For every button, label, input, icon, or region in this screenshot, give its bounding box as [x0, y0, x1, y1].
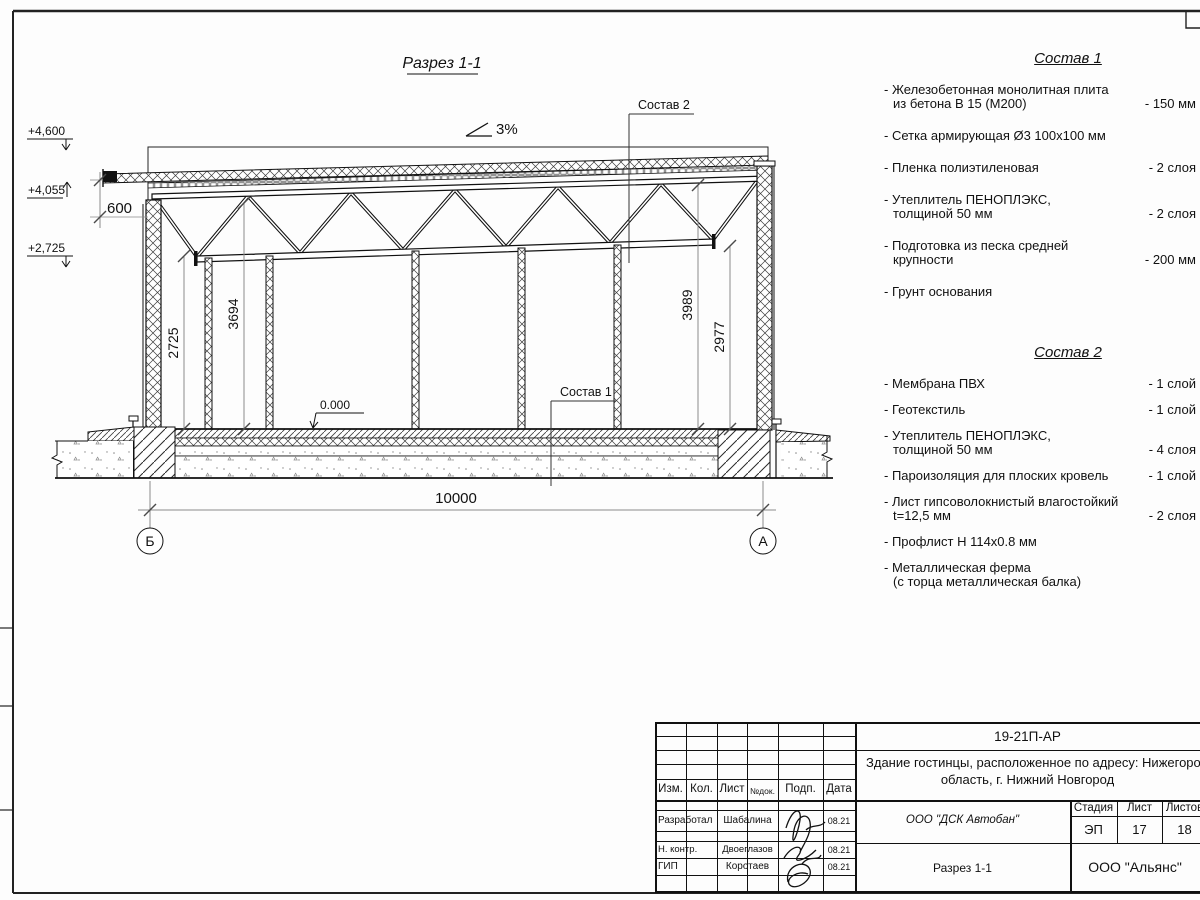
list-item: - Железобетонная монолитная плита из бет…	[884, 83, 1196, 111]
item-line1: - Профлист Н 114х0.8 мм	[884, 535, 1037, 549]
row-role: Разработал	[658, 815, 712, 826]
span-dimension: 10000 Б А	[137, 481, 776, 554]
col-header-kol: Кол.	[686, 783, 717, 795]
ground-left	[57, 441, 133, 478]
item-quantity: - 1 слой	[1142, 377, 1196, 391]
item-quantity: - 200 мм	[1139, 253, 1196, 267]
list-item: - Лист гипсоволокнистый влагостойкий t=1…	[884, 495, 1196, 523]
slope-angle-icon	[466, 123, 492, 136]
zero-level-mark: 0.000	[310, 398, 364, 428]
list-item: - Металлическая ферма (с торца металличе…	[884, 561, 1196, 589]
item-line1: - Утеплитель ПЕНОПЛЭКС,	[884, 429, 1051, 443]
floor-sand-layer	[168, 446, 749, 456]
list-item: - Пароизоляция для плоских кровель - 1 с…	[884, 469, 1196, 483]
level-4055: +4,055	[28, 183, 65, 197]
item-quantity: - 1 слой	[1142, 403, 1196, 417]
sheets-total: 18	[1162, 822, 1200, 837]
right-wall	[757, 166, 772, 430]
column	[518, 248, 525, 429]
item-line2: толщиной 50 мм	[884, 207, 1051, 221]
row-role: Н. контр.	[658, 844, 697, 855]
drawing-name: Разрез 1-1	[855, 861, 1070, 875]
list-item: - Утеплитель ПЕНОПЛЭКС, толщиной 50 мм -…	[884, 193, 1196, 221]
frame-corner-notch	[1186, 12, 1200, 28]
level-4600: +4,600	[28, 124, 65, 138]
item-line2: из бетона В 15 (М200)	[884, 97, 1109, 111]
slope-mark: 3%	[466, 121, 518, 138]
drawing-title: Разрез 1-1	[402, 55, 481, 74]
company-name: ООО "Альянс"	[1070, 859, 1200, 875]
dim-3989: 3989	[679, 289, 695, 320]
drawing-title-text: Разрез 1-1	[402, 55, 481, 72]
sheets-label: Листов	[1162, 802, 1200, 814]
list-item: - Сетка армирующая Ø3 100х100 мм	[884, 129, 1196, 143]
stage-value: ЭП	[1070, 822, 1117, 837]
dim-3694: 3694	[225, 298, 241, 329]
sheet-number: 17	[1117, 822, 1162, 837]
floor-assembly	[161, 429, 757, 478]
elevation-marks: +4,600 +4,055 +2,725	[27, 124, 73, 267]
level-0000: 0.000	[320, 398, 350, 412]
eave-fascia-block	[103, 171, 117, 182]
list-item: - Профлист Н 114х0.8 мм	[884, 535, 1196, 549]
item-line1: - Грунт основания	[884, 285, 992, 299]
row-name: Двоеглазов	[717, 844, 778, 855]
item-line1: - Мембрана ПВХ	[884, 377, 985, 391]
slope-value: 3%	[496, 121, 518, 138]
item-line1: - Геотекстиль	[884, 403, 965, 417]
project-name-line1: Здание гостинцы, расположенное по адресу…	[866, 755, 1200, 770]
item-line1: - Лист гипсоволокнистый влагостойкий	[884, 495, 1118, 509]
dim-600: 600	[107, 200, 132, 217]
floor-screed-layer	[161, 429, 757, 438]
dim-10000: 10000	[435, 490, 477, 507]
item-line2: t=12,5 мм	[884, 509, 1118, 523]
col-header-izm: Изм.	[655, 783, 686, 795]
item-line1: - Металлическая ферма	[884, 561, 1081, 575]
column	[205, 258, 212, 429]
doc-number: 19-21П-АР	[855, 729, 1200, 744]
apron-right	[776, 430, 830, 442]
item-quantity: - 1 слой	[1142, 469, 1196, 483]
title-block: Изм. Кол. Лист №док. Подп. Дата Разработ…	[655, 722, 1200, 893]
item-line2: (с торца металлическая балка)	[884, 575, 1081, 589]
item-quantity: - 2 слоя	[1143, 161, 1196, 175]
item-line2: толщиной 50 мм	[884, 443, 1051, 457]
contractor-name: ООО "ДСК Автобан"	[855, 814, 1070, 826]
axis-label-b: Б	[145, 533, 154, 549]
row-name: Шабалина	[717, 815, 778, 826]
stage-label: Стадия	[1070, 802, 1117, 814]
apron-left	[88, 427, 134, 441]
col-header-ndok: №док.	[747, 786, 778, 796]
col-header-list: Лист	[717, 783, 747, 795]
dim-2725: 2725	[165, 327, 181, 358]
item-line1: - Пленка полиэтиленовая	[884, 161, 1039, 175]
callout-sostav2-label: Состав 2	[638, 98, 690, 112]
binding-marks	[0, 628, 13, 810]
floor-insulation-layer	[161, 438, 757, 446]
row-name: Коротаев	[717, 861, 778, 872]
level-2725: +2,725	[28, 241, 65, 255]
sostav2-list: Состав 2 - Мембрана ПВХ - 1 слой - Геоте…	[884, 346, 1196, 601]
column	[266, 256, 273, 429]
list-item: - Утеплитель ПЕНОПЛЭКС, толщиной 50 мм -…	[884, 429, 1196, 457]
left-wall	[146, 200, 161, 429]
dim-2977: 2977	[711, 321, 727, 352]
project-name-line2: область, г. Нижний Новгород	[855, 772, 1200, 787]
signatures	[778, 800, 828, 893]
item-line1: - Подготовка из песка средней	[884, 239, 1068, 253]
sostav2-title: Состав 2	[912, 346, 1200, 360]
axis-label-a: А	[758, 533, 768, 549]
sostav1-list: Состав 1 - Железобетонная монолитная пли…	[884, 52, 1196, 317]
item-line2: крупности	[884, 253, 1068, 267]
list-item: - Геотекстиль - 1 слой	[884, 403, 1196, 417]
callout-sostav1-label: Состав 1	[560, 385, 612, 399]
item-quantity: - 2 слоя	[1143, 509, 1196, 523]
column	[412, 251, 419, 429]
blueprint-sheet: { "sheet": { "title": "Разрез 1-1", "slo…	[0, 0, 1200, 900]
col-header-data: Дата	[823, 783, 855, 795]
col-header-podp: Подп.	[778, 783, 823, 795]
signature-korotaev	[788, 855, 821, 887]
item-line1: - Железобетонная монолитная плита	[884, 83, 1109, 97]
item-line1: - Утеплитель ПЕНОПЛЭКС,	[884, 193, 1051, 207]
parapet-cap	[754, 161, 775, 166]
item-line1: - Сетка армирующая Ø3 100х100 мм	[884, 129, 1106, 143]
list-item: - Подготовка из песка средней крупности …	[884, 239, 1196, 267]
list-item: - Мембрана ПВХ - 1 слой	[884, 377, 1196, 391]
sheet-label: Лист	[1117, 802, 1162, 814]
foundation-left	[134, 427, 175, 478]
row-role: ГИП	[658, 861, 678, 872]
edge-board-cap-right	[772, 419, 781, 424]
sostav1-title: Состав 1	[912, 52, 1200, 66]
item-line1: - Пароизоляция для плоских кровель	[884, 469, 1108, 483]
item-quantity: - 150 мм	[1139, 97, 1196, 111]
ground-right	[781, 442, 827, 478]
foundation-right	[718, 430, 770, 478]
item-quantity: - 2 слоя	[1143, 207, 1196, 221]
item-quantity: - 4 слоя	[1143, 443, 1196, 457]
list-item: - Пленка полиэтиленовая - 2 слоя	[884, 161, 1196, 175]
dimension-ticks	[178, 179, 736, 435]
edge-board-cap-left	[129, 416, 138, 421]
signature-shabalina	[786, 811, 825, 852]
truss-bottom-chord	[197, 239, 713, 262]
list-item: - Грунт основания	[884, 285, 1196, 299]
floor-slab	[168, 456, 749, 478]
truss-end-plate-right	[712, 234, 716, 249]
truss-end-plate-left	[194, 251, 198, 266]
